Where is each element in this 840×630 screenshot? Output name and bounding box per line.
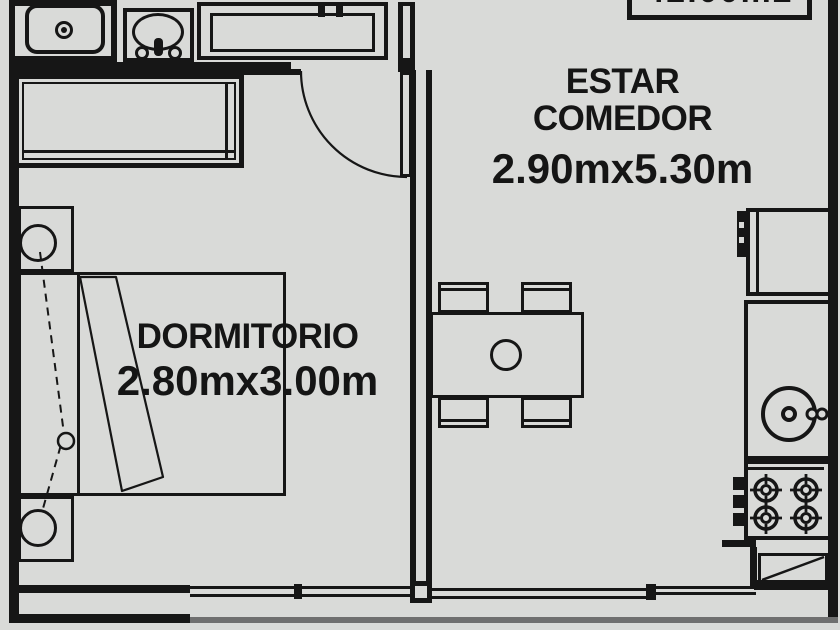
fridge-handle-notch — [739, 237, 744, 243]
bedroom-name: DORMITORIO — [95, 319, 400, 356]
floor-plan: 42.00m2 ESTAR COMEDOR 2.90mx5.30m DORMIT… — [0, 0, 840, 630]
lamp-top-icon — [19, 224, 57, 262]
upper-partition-wall — [398, 2, 415, 59]
chair-backrest — [524, 288, 569, 291]
bedroom-label: DORMITORIO 2.80mx3.00m — [95, 319, 400, 403]
living-dimensions: 2.90mx5.30m — [450, 147, 795, 191]
stove-knob — [733, 495, 744, 508]
sink-drain-dot — [61, 27, 67, 33]
chair-backrest — [441, 419, 486, 422]
door-hinge-block — [398, 58, 415, 72]
counter-return-vertical — [750, 547, 757, 589]
faucet-stem-icon — [154, 38, 163, 56]
partition-end-block — [410, 581, 432, 603]
stove-inner-top-line — [748, 467, 824, 470]
bedroom-dimensions: 2.80mx3.00m — [95, 359, 400, 403]
area-box-label: 42.00m2 — [632, 0, 807, 11]
counter-tie2 — [336, 2, 343, 17]
chair-backrest — [524, 419, 569, 422]
bedroom-bottom-wall-outer — [9, 585, 190, 593]
window-end-block — [646, 584, 656, 600]
slab-edge-line — [190, 617, 838, 623]
chair-backrest — [441, 288, 486, 291]
fridge-handle-notch — [739, 222, 744, 228]
door-swing-arc — [301, 71, 407, 177]
chair — [438, 397, 489, 428]
chair — [521, 397, 572, 428]
closet-shelf-line — [24, 150, 234, 153]
lamp-bottom-icon — [19, 509, 57, 547]
stove-knob — [733, 513, 744, 526]
fridge-inner-line — [756, 212, 759, 292]
bed-headboard-line — [77, 274, 80, 494]
hatched-cabinet — [758, 553, 828, 583]
window-mullion — [294, 584, 302, 599]
counter-return-bar — [722, 540, 756, 547]
right-wall — [828, 0, 838, 622]
kitchen-counter-inner — [210, 13, 375, 52]
chair — [438, 282, 489, 313]
living-name-line2: COMEDOR — [450, 101, 795, 138]
sill-line1 — [656, 586, 756, 589]
living-room-label: ESTAR COMEDOR 2.90mx5.30m — [450, 64, 795, 191]
living-window-line1 — [432, 588, 650, 591]
stove-knob — [733, 477, 744, 490]
partition-wall — [410, 70, 432, 586]
wall-notch — [291, 62, 301, 69]
closet-divider — [225, 84, 228, 158]
laundry-basin-hub — [781, 406, 797, 422]
door-leaf — [400, 72, 412, 177]
closet-inner — [22, 82, 236, 160]
fridge-handle — [737, 211, 746, 257]
living-name-line1: ESTAR — [450, 64, 795, 101]
stove — [744, 460, 828, 540]
sill-line2 — [656, 592, 756, 595]
counter-tie1 — [318, 2, 325, 17]
area-box: 42.00m2 — [627, 0, 812, 20]
table-center-circle — [490, 339, 522, 371]
bedroom-bottom-wall-inner — [9, 614, 190, 623]
living-window-line2 — [432, 596, 650, 599]
chair — [521, 282, 572, 313]
